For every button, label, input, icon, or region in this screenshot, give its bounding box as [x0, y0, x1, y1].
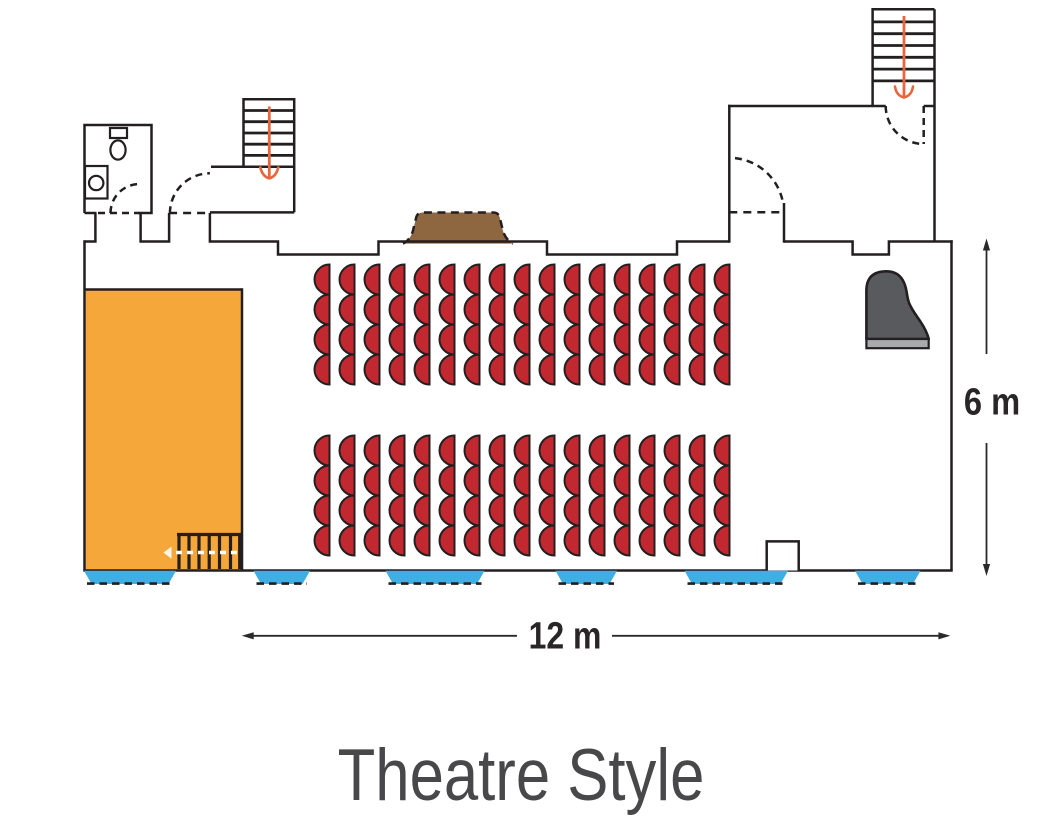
svg-text:Theatre Style: Theatre Style	[338, 735, 705, 816]
svg-text:6 m: 6 m	[964, 380, 1020, 423]
svg-text:12 m: 12 m	[529, 615, 602, 657]
